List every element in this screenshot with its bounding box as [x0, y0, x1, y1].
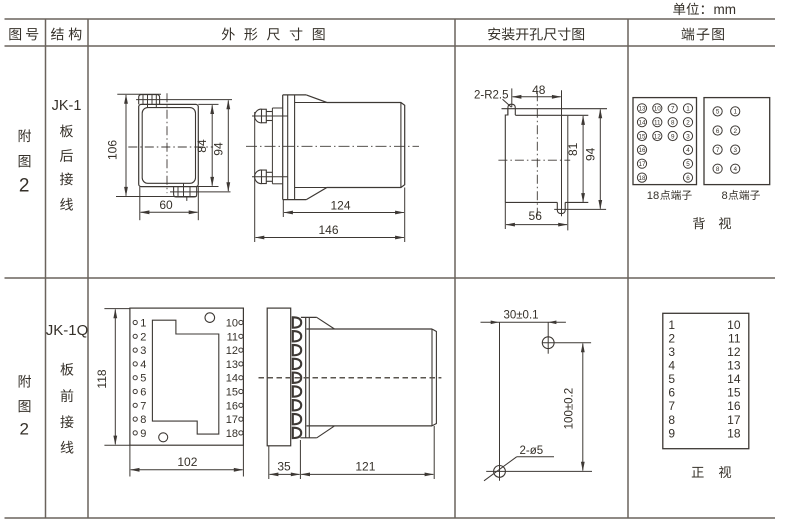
svg-text:81: 81	[566, 142, 580, 156]
svg-text:9: 9	[140, 428, 146, 440]
svg-text:84: 84	[195, 139, 209, 153]
svg-text:16: 16	[226, 400, 238, 412]
svg-text:18: 18	[647, 190, 659, 202]
svg-text:4: 4	[733, 166, 737, 173]
svg-text:1: 1	[733, 109, 737, 116]
svg-text:10: 10	[654, 106, 662, 113]
svg-text:30±0.1: 30±0.1	[503, 310, 538, 322]
svg-text:2: 2	[19, 420, 28, 439]
svg-text:6: 6	[686, 175, 690, 182]
svg-text:12: 12	[226, 345, 238, 357]
svg-text:18: 18	[638, 175, 646, 182]
svg-text:mm: mm	[714, 2, 737, 17]
svg-text:13: 13	[638, 106, 646, 113]
svg-text:16: 16	[727, 399, 741, 413]
svg-text:2-ø5: 2-ø5	[520, 445, 544, 457]
svg-text:8: 8	[671, 120, 675, 127]
svg-text:5: 5	[716, 109, 720, 116]
svg-text:4: 4	[686, 147, 690, 154]
svg-text:7: 7	[140, 400, 146, 412]
svg-text:8: 8	[140, 414, 146, 426]
svg-text:15: 15	[226, 387, 238, 399]
svg-text:1: 1	[140, 318, 146, 330]
svg-text:60: 60	[159, 198, 173, 212]
svg-text:100±0.2: 100±0.2	[564, 388, 576, 430]
svg-text:6: 6	[668, 386, 675, 400]
svg-text:17: 17	[226, 414, 238, 426]
svg-text:13: 13	[226, 359, 238, 371]
svg-text:2: 2	[140, 331, 146, 343]
svg-text:4: 4	[668, 359, 675, 373]
svg-text:11: 11	[654, 120, 661, 127]
svg-text:14: 14	[727, 372, 741, 386]
svg-text:2: 2	[19, 176, 30, 197]
svg-text:7: 7	[671, 106, 675, 113]
svg-text:94: 94	[212, 142, 226, 156]
svg-text:3: 3	[668, 345, 675, 359]
svg-text:5: 5	[686, 161, 690, 168]
svg-text:106: 106	[106, 140, 120, 160]
svg-text:124: 124	[330, 198, 350, 212]
svg-text:14: 14	[226, 373, 238, 385]
svg-text:8: 8	[716, 166, 720, 173]
svg-text:2: 2	[733, 128, 737, 135]
svg-text:1: 1	[686, 106, 690, 113]
svg-text:3: 3	[733, 147, 737, 154]
svg-text:9: 9	[671, 133, 675, 140]
svg-text:1: 1	[668, 318, 675, 332]
svg-text:3: 3	[686, 133, 690, 140]
svg-text:17: 17	[638, 161, 646, 168]
svg-text:2: 2	[668, 331, 675, 345]
svg-text:3: 3	[140, 345, 146, 357]
svg-text:16: 16	[638, 147, 646, 154]
svg-text:9: 9	[668, 426, 675, 440]
svg-text:17: 17	[727, 413, 741, 427]
svg-text:18: 18	[727, 426, 741, 440]
svg-text:102: 102	[177, 455, 197, 469]
svg-text:118: 118	[95, 369, 109, 388]
svg-text:13: 13	[727, 359, 741, 373]
svg-text:JK-1Q: JK-1Q	[46, 322, 89, 339]
svg-text:146: 146	[318, 223, 338, 237]
svg-text:56: 56	[529, 209, 543, 223]
svg-text:5: 5	[668, 372, 675, 386]
svg-text:94: 94	[583, 147, 597, 161]
svg-text:6: 6	[140, 387, 146, 399]
svg-text:15: 15	[727, 386, 741, 400]
svg-text:8: 8	[668, 413, 675, 427]
svg-text:7: 7	[668, 399, 675, 413]
svg-text:7: 7	[716, 147, 720, 154]
svg-text:4: 4	[140, 359, 146, 371]
svg-text:18: 18	[226, 428, 238, 440]
svg-text:121: 121	[355, 460, 375, 474]
svg-text:12: 12	[654, 133, 662, 140]
svg-text:10: 10	[226, 318, 238, 330]
svg-text:11: 11	[728, 331, 741, 345]
svg-text:15: 15	[638, 133, 646, 140]
svg-text:35: 35	[277, 460, 291, 474]
svg-text:JK-1: JK-1	[52, 98, 82, 114]
svg-text:10: 10	[727, 318, 741, 332]
svg-text:12: 12	[727, 345, 741, 359]
svg-text:14: 14	[638, 120, 646, 127]
svg-text:2: 2	[686, 120, 690, 127]
svg-text:6: 6	[716, 128, 720, 135]
svg-text:48: 48	[532, 83, 546, 97]
svg-text:11: 11	[227, 331, 238, 343]
svg-text:5: 5	[140, 373, 146, 385]
svg-text:8: 8	[722, 190, 728, 202]
